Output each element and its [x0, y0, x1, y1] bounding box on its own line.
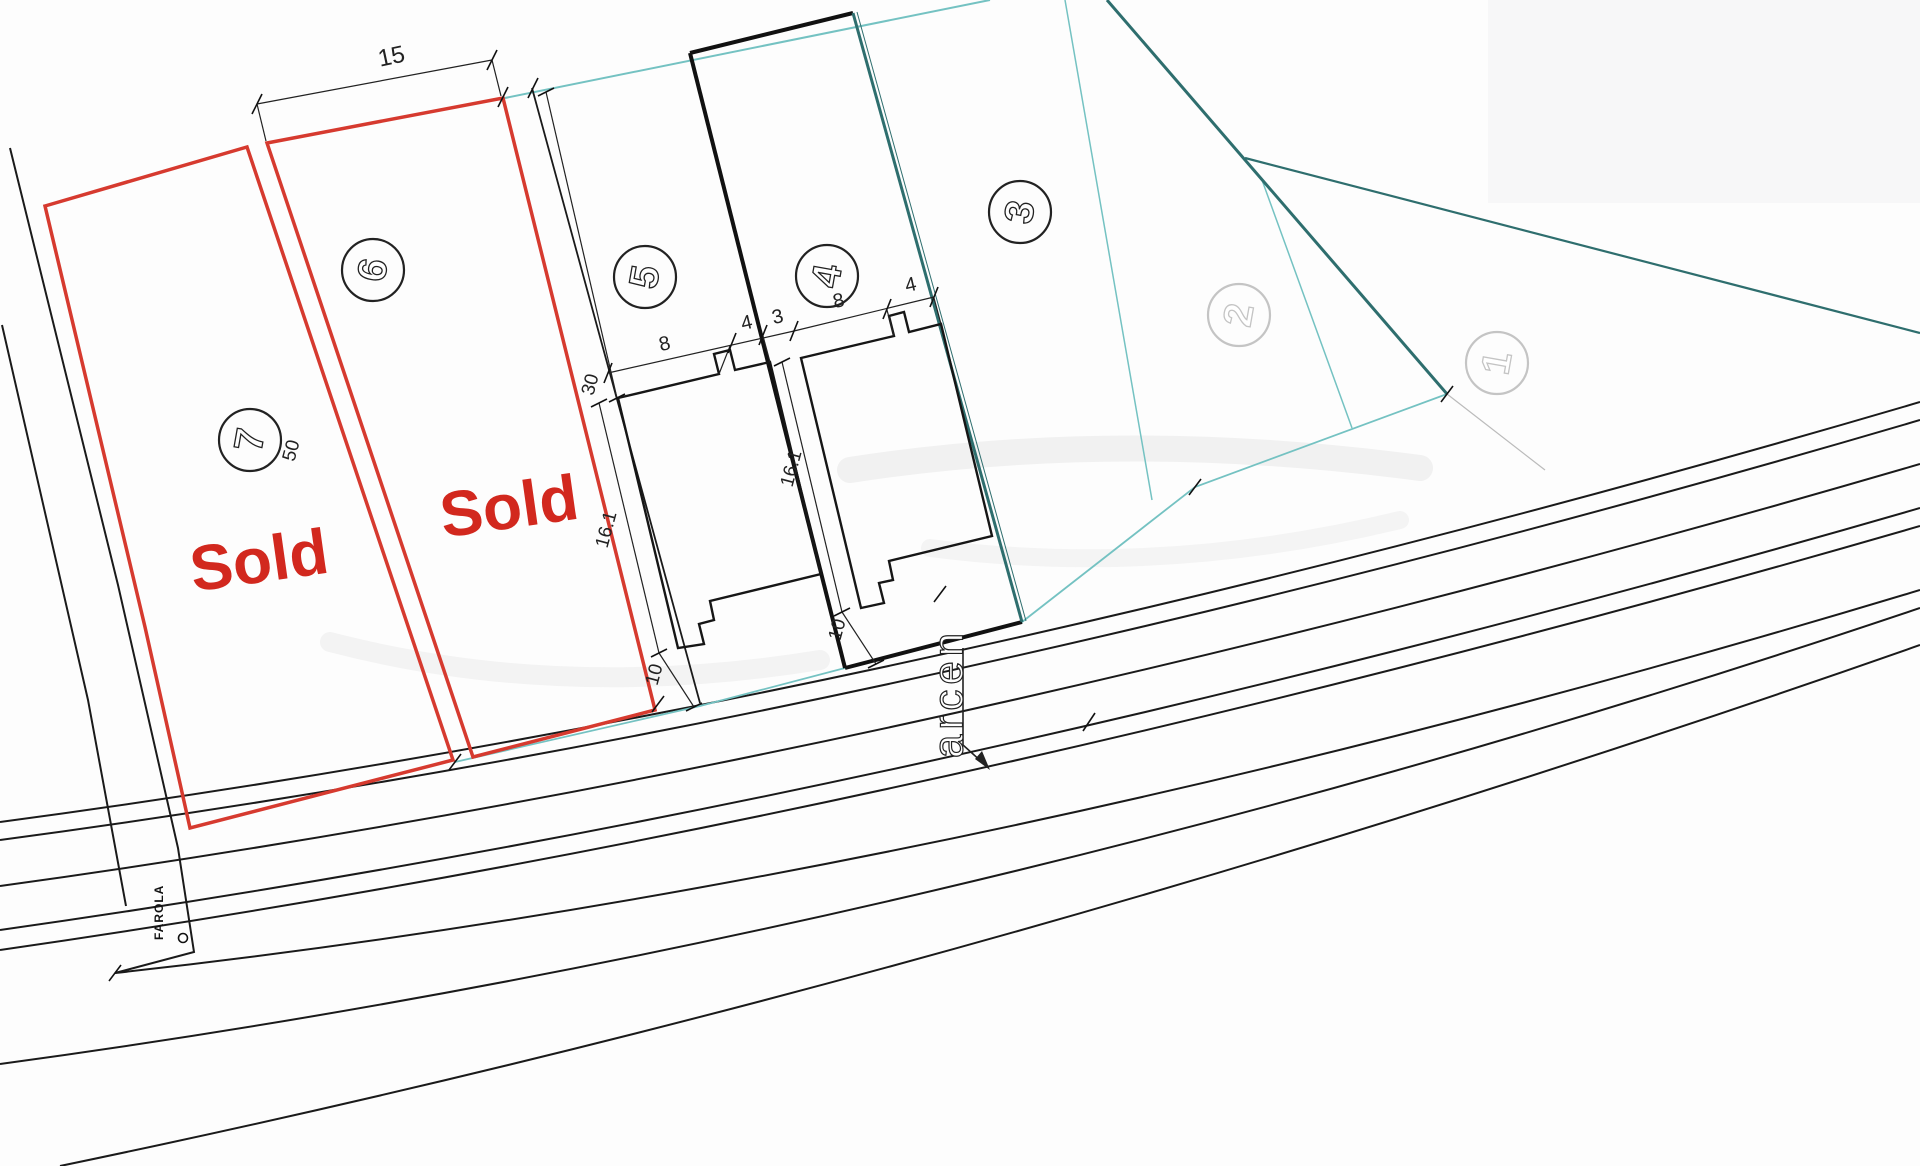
dim-line-house4-front: [794, 297, 934, 331]
house-plot5: [618, 350, 821, 648]
north-boundary: [500, 0, 990, 99]
dim-house4-rear: 10: [825, 617, 851, 643]
boundary-continuation: [1447, 394, 1545, 470]
plot4-east-edge-double: [857, 12, 1026, 621]
streetlight-icon: [179, 934, 188, 943]
dim-house5-front-left: 8: [657, 332, 673, 356]
dim-line-setback: [546, 92, 617, 398]
divider-plot3-plot2: [1065, 0, 1152, 500]
house-footprints: [618, 312, 992, 648]
dim-ext: [492, 60, 501, 96]
site-plan-drawing: 7 6 5 4 3 2 1 Sold Sold 15 50 30 8 4 3 8…: [0, 0, 1920, 1166]
dim-house4-front-left: 8: [831, 289, 847, 313]
dim-lot-depth: 50: [279, 438, 305, 464]
plot-6-number: 6: [349, 255, 396, 285]
road-lines: [0, 402, 1920, 1166]
tick-marks: [109, 50, 1453, 981]
dim-house4-side: 16.1: [777, 448, 807, 489]
plot-3-number: 3: [996, 197, 1043, 227]
dim-house4-front-right: 4: [903, 273, 919, 297]
scan-shadow-topright: [1488, 0, 1920, 203]
sold-label-plot6: Sold: [435, 461, 582, 552]
plot-7-number: 7: [226, 425, 273, 455]
dim-house-gap: 3: [770, 305, 786, 329]
dim-house5-side: 16.1: [592, 509, 622, 550]
dim-lot-width: 15: [376, 41, 408, 73]
sold-label-plot7: Sold: [185, 515, 332, 606]
plot4-east-edge: [853, 13, 1022, 622]
plot-2-number: 2: [1215, 300, 1262, 330]
plot-1-number: 1: [1473, 348, 1520, 378]
left-boundary-lines: [2, 148, 194, 973]
divider-plot2-plot1: [1262, 180, 1352, 428]
streetlight-label: FAROLA: [152, 885, 166, 940]
plot4-west-edge: [690, 53, 845, 668]
plot-4-number: 4: [803, 260, 850, 290]
dim-line-lot-width: [257, 60, 492, 104]
scan-smudge: [850, 448, 1420, 470]
plot-5-number: 5: [621, 262, 668, 292]
site-plan-page: 7 6 5 4 3 2 1 Sold Sold 15 50 30 8 4 3 8…: [0, 0, 1920, 1166]
scan-smudge: [330, 642, 820, 677]
plot-4-outline: [690, 12, 1026, 668]
west-boundary-kerb: [10, 148, 194, 973]
dim-setback: 30: [578, 372, 604, 398]
shoulder-label: arcen: [925, 628, 972, 758]
dim-house5-front-right: 4: [739, 311, 755, 335]
plot-number-badges: 7 6 5 4 3 2 1: [219, 181, 1528, 471]
dim-line-house4-rear: [842, 612, 876, 664]
road-line: [60, 645, 1920, 1166]
plot-7-outline: [45, 147, 453, 828]
dim-ext: [257, 104, 266, 141]
